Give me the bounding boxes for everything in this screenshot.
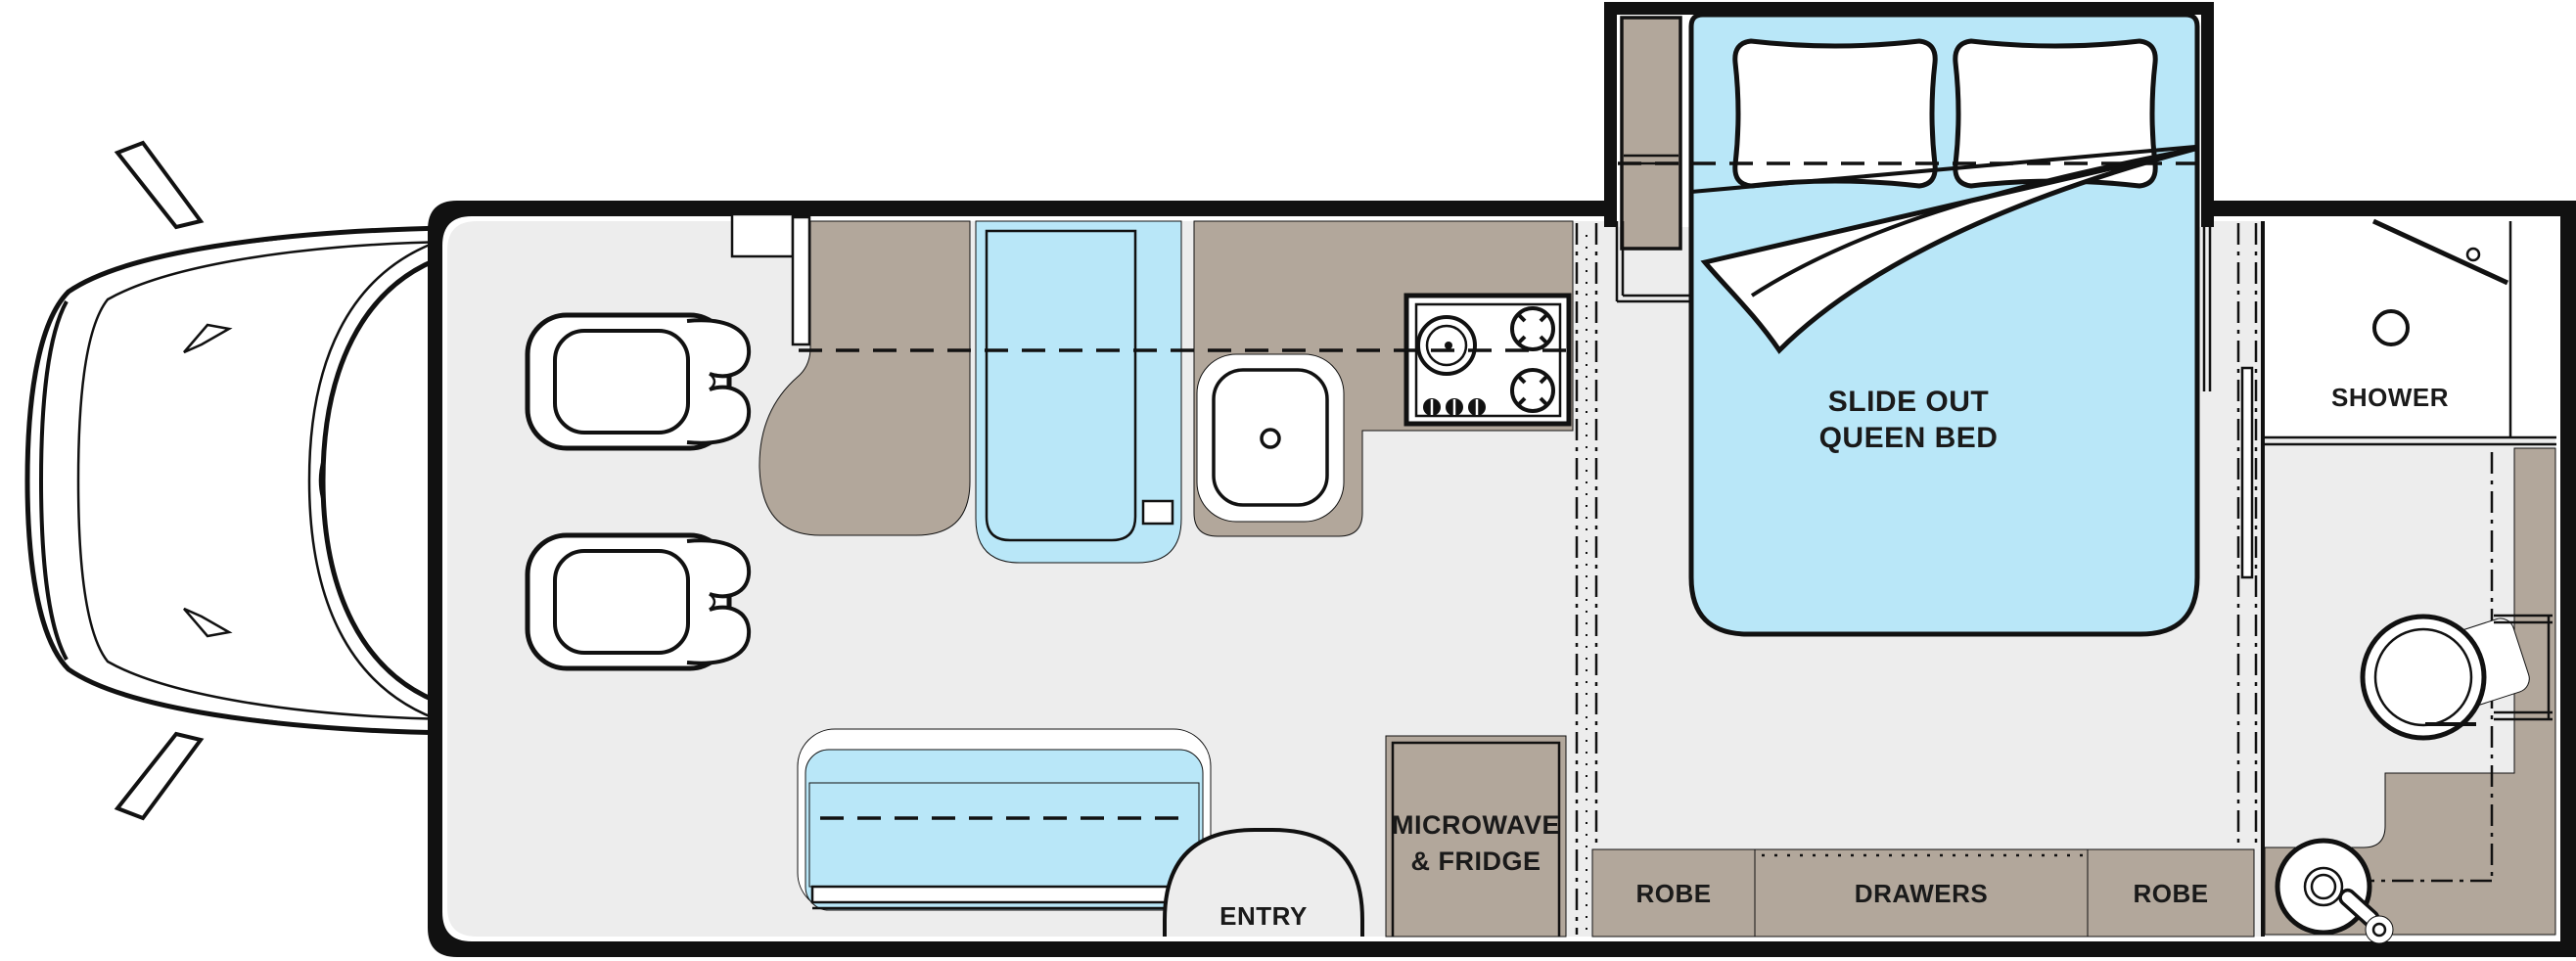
floorplan-drawing: SLIDE OUT QUEEN BED — [0, 0, 2576, 961]
sofa-seat — [809, 783, 1199, 887]
robe-left-label: ROBE — [1635, 879, 1711, 908]
side-mirror-bottom — [117, 734, 201, 818]
bath-door-panel — [2242, 368, 2252, 577]
microwave-fridge-unit: MICROWAVE & FRIDGE — [1386, 736, 1566, 937]
toilet-bowl — [2363, 617, 2484, 738]
wall-ledge — [732, 214, 793, 256]
captain-chair-top — [528, 315, 749, 448]
rv-floorplan-canvas: SLIDE OUT QUEEN BED — [0, 0, 2576, 961]
shower-door-handle — [2467, 249, 2479, 260]
microwave-label-line1: MICROWAVE — [1392, 810, 1560, 840]
wall-slot — [793, 217, 809, 344]
shower-label: SHOWER — [2331, 383, 2449, 412]
sofa — [798, 729, 1211, 910]
captain-chair-bottom — [528, 535, 749, 668]
bed-label-line2: QUEEN BED — [1819, 422, 1999, 454]
bed-slideout: SLIDE OUT QUEEN BED — [1604, 2, 2214, 634]
bedroom-cabinets: ROBE DRAWERS ROBE — [1592, 849, 2254, 937]
robe-right-label: ROBE — [2133, 879, 2208, 908]
entry-label: ENTRY — [1219, 901, 1308, 931]
bedside-wardrobe — [1622, 18, 1680, 249]
sink-drain — [1262, 430, 1279, 447]
bench-notch — [1143, 501, 1173, 524]
microwave-label-line2: & FRIDGE — [1410, 847, 1541, 876]
bed-label-line1: SLIDE OUT — [1828, 386, 1990, 418]
drawers-label: DRAWERS — [1855, 879, 1988, 908]
vehicle-cab — [27, 143, 450, 818]
stove-knobs — [1423, 398, 1486, 416]
sofa-base — [812, 887, 1196, 902]
burner-large-dot — [1445, 342, 1452, 349]
entry-door: ENTRY — [1165, 830, 1362, 937]
pillow-left — [1735, 41, 1935, 186]
basin-bowl — [2277, 841, 2369, 933]
basin-faucet-base — [2366, 916, 2393, 943]
side-mirror-top — [117, 143, 201, 227]
cab-body-outline — [27, 228, 450, 733]
